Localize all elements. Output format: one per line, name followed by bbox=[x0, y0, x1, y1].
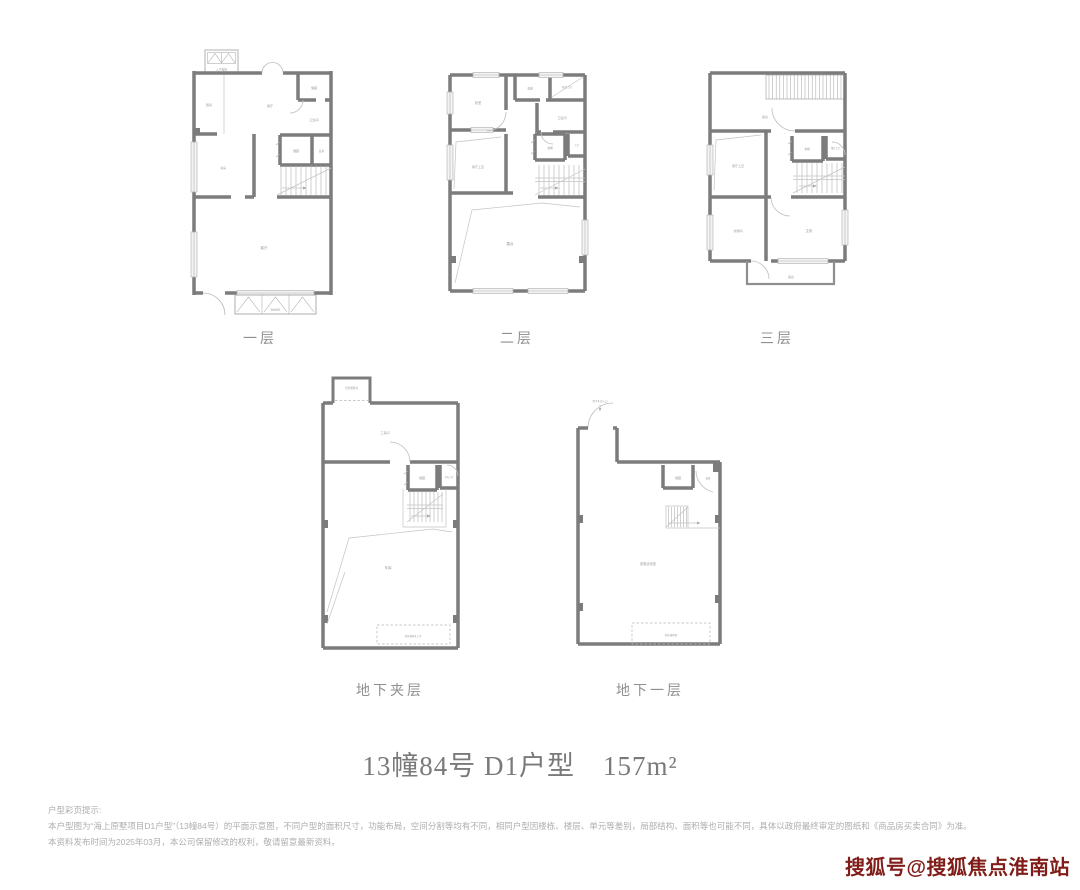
room-label-courtyard: 私家庭院 bbox=[271, 308, 281, 312]
walls bbox=[450, 75, 585, 291]
svg-text:客厅上空: 客厅上空 bbox=[472, 164, 484, 169]
svg-text:工具间: 工具间 bbox=[380, 430, 389, 435]
svg-text:书房: 书房 bbox=[220, 165, 226, 170]
ramp-lines bbox=[327, 529, 452, 624]
svg-text:车库: 车库 bbox=[385, 565, 393, 570]
svg-text:露台: 露台 bbox=[762, 114, 768, 119]
svg-text:露台上空: 露台上空 bbox=[831, 146, 841, 150]
pergola-icon bbox=[766, 75, 845, 99]
garage-entrance: 地下车库入口 bbox=[588, 399, 613, 428]
floorplan-mezzanine: 室外通风井 室外通风井上空 工具间 bbox=[315, 372, 463, 652]
svg-text:衣帽: 衣帽 bbox=[804, 147, 810, 151]
room-label-vent-void: 室外通风井上空 bbox=[405, 634, 422, 638]
floor-caption-basement1: 地下一层 bbox=[575, 680, 725, 700]
room-labels: 卧室 衣帽 阳台上空 卫生间 衣帽 上空 客厅上空 露台 bbox=[472, 85, 580, 246]
unit-title: 13幢84号 D1户型 157m² bbox=[0, 744, 1040, 783]
svg-text:卫生间: 卫生间 bbox=[557, 115, 566, 120]
svg-text:主卧: 主卧 bbox=[806, 228, 814, 233]
floor-caption-mezzanine: 地下夹层 bbox=[315, 680, 465, 700]
vent-shaft-area: 室外通风井 bbox=[632, 623, 710, 644]
walls bbox=[323, 403, 458, 648]
disclaimer-heading: 户型彩页提示: bbox=[48, 803, 972, 819]
svg-text:设备: 设备 bbox=[705, 476, 711, 480]
room-label-vent: 室外通风井 bbox=[665, 633, 678, 637]
room-label-vent: 室外通风井 bbox=[345, 386, 358, 390]
svg-text:卧室: 卧室 bbox=[475, 100, 481, 105]
svg-text:餐厅: 餐厅 bbox=[267, 103, 273, 108]
windows bbox=[447, 73, 588, 294]
svg-text:储藏: 储藏 bbox=[311, 85, 317, 90]
elevator-icon: 入户电梯 bbox=[205, 50, 238, 73]
svg-text:衣帽间: 衣帽间 bbox=[733, 228, 742, 233]
floorplan-level1: 入户电梯 私家庭院 bbox=[185, 42, 335, 322]
svg-text:客厅上空: 客厅上空 bbox=[732, 163, 744, 168]
disclaimer-line1: 本户型图为“海上原墅项目D1户型”（13幢84号）的平面示意图，不同户型的面积尺… bbox=[48, 819, 972, 835]
room-label-elevator: 入户电梯 bbox=[216, 68, 227, 72]
svg-text:储藏: 储藏 bbox=[419, 475, 425, 480]
svg-text:卫生间: 卫生间 bbox=[309, 117, 318, 122]
walls bbox=[710, 73, 845, 261]
svg-text:厨房: 厨房 bbox=[206, 102, 212, 107]
floorplan-basement1: 地下车库入口 室外通风井 储藏 设备 家庭 bbox=[575, 395, 723, 650]
door-arcs bbox=[696, 471, 713, 492]
svg-text:车库上空: 车库上空 bbox=[445, 475, 455, 479]
floorplan-level3: 露台 客厅上空 衣帽 露台上空 衣帽间 主卧 露台 bbox=[703, 60, 851, 295]
svg-text:家庭活动室: 家庭活动室 bbox=[640, 561, 656, 566]
svg-text:储藏: 储藏 bbox=[293, 148, 299, 153]
floor-caption-level2: 二层 bbox=[443, 328, 591, 348]
svg-text:客厅: 客厅 bbox=[261, 245, 269, 250]
svg-text:阳台上空: 阳台上空 bbox=[562, 85, 573, 89]
disclaimer-line2: 本资料发布时间为2025年03月，本公司保留修改的权利，敬请留意最新资料。 bbox=[48, 835, 972, 851]
stairs-icon bbox=[403, 489, 446, 527]
room-labels: 工具间 储藏 车库上空 车库 bbox=[380, 430, 454, 570]
stairs-icon bbox=[535, 165, 585, 195]
stairs-icon bbox=[666, 506, 720, 528]
stairs-icon bbox=[793, 163, 845, 193]
svg-text:储藏: 储藏 bbox=[675, 475, 681, 480]
stairs-icon bbox=[277, 165, 331, 195]
floor-caption-level1: 一层 bbox=[185, 328, 335, 348]
courtyard-gate-icon: 私家庭院 bbox=[235, 295, 316, 314]
balcony bbox=[747, 261, 834, 284]
disclaimer: 户型彩页提示: 本户型图为“海上原墅项目D1户型”（13幢84号）的平面示意图，… bbox=[48, 803, 972, 850]
windows bbox=[707, 145, 848, 264]
svg-text:衣帽: 衣帽 bbox=[547, 146, 553, 150]
svg-text:露台: 露台 bbox=[507, 241, 515, 246]
vent-void-area: 室外通风井上空 bbox=[377, 625, 450, 644]
floorplan-level2: 卧室 衣帽 阳台上空 卫生间 衣帽 上空 客厅上空 露台 bbox=[443, 70, 591, 295]
room-label-entrance: 地下车库入口 bbox=[592, 399, 608, 403]
floor-caption-level3: 三层 bbox=[703, 328, 851, 348]
void-lines bbox=[714, 135, 761, 190]
svg-text:露台: 露台 bbox=[788, 274, 794, 279]
vent-shaft-box: 室外通风井 bbox=[333, 378, 370, 403]
sohu-watermark: 搜狐号@搜狐焦点淮南站 bbox=[845, 851, 1070, 880]
walls bbox=[194, 71, 331, 295]
floorplan-flyer-page: 入户电梯 私家庭院 bbox=[0, 0, 1080, 890]
svg-text:上空: 上空 bbox=[574, 143, 579, 147]
walls bbox=[578, 428, 720, 644]
svg-text:玄关: 玄关 bbox=[319, 149, 325, 153]
svg-text:衣帽: 衣帽 bbox=[527, 87, 533, 91]
